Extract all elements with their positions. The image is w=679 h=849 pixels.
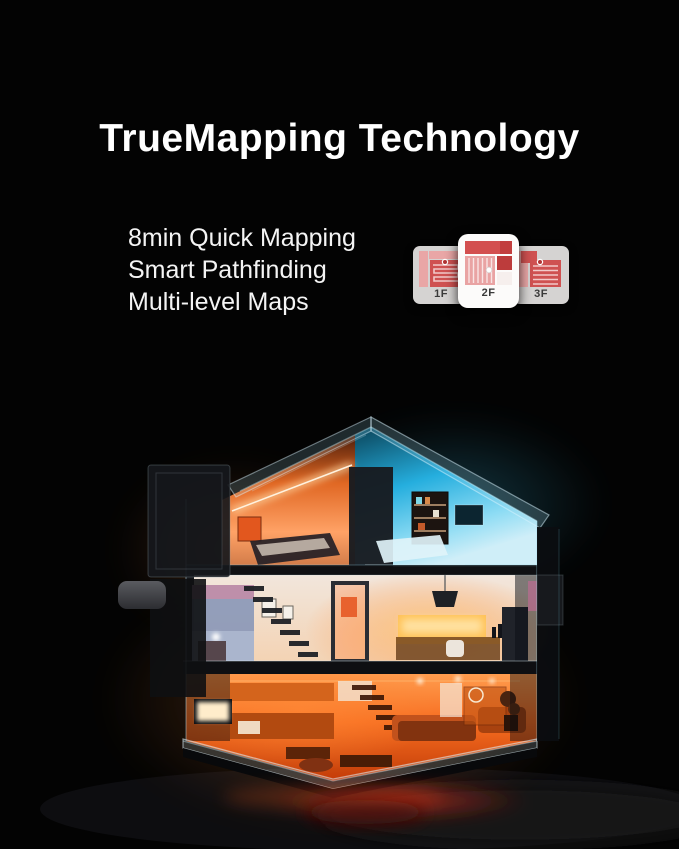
feature-item-smart-pathfinding: Smart Pathfinding — [128, 254, 356, 286]
side-tab — [118, 581, 166, 609]
tv-screen-glow — [197, 702, 229, 721]
chair — [446, 640, 464, 657]
floor-map-icon-2f — [458, 240, 519, 291]
pendant-lamp — [432, 591, 458, 607]
floor-map-icon-3f — [513, 250, 569, 293]
coffee-table — [286, 747, 330, 759]
picture-frame — [283, 606, 293, 619]
floor-card-2f: 2F — [458, 234, 519, 308]
doorway — [333, 583, 367, 661]
coffee-table — [340, 755, 392, 767]
shelving — [464, 687, 506, 725]
ottoman — [299, 758, 333, 772]
house-cutaway-render — [0, 369, 679, 849]
page-title: TrueMapping Technology — [0, 117, 679, 161]
right-glass-panel — [537, 527, 563, 741]
tv-screen — [455, 505, 483, 525]
attic-floor-slab — [186, 565, 537, 575]
floor-map-cards: 1F 2F — [411, 234, 573, 316]
mid-floor-slab — [183, 661, 537, 674]
wall-art-frame — [238, 517, 261, 541]
feature-item-quick-mapping: 8min Quick Mapping — [128, 222, 356, 254]
floor-card-label: 2F — [458, 287, 519, 299]
feature-item-multi-level-maps: Multi-level Maps — [128, 286, 356, 318]
upper-cabinets — [230, 683, 334, 701]
feature-list: 8min Quick Mapping Smart Pathfinding Mul… — [128, 222, 356, 318]
page-root: TrueMapping Technology 8min Quick Mappin… — [0, 0, 679, 849]
floor-card-3f: 3F — [513, 246, 569, 304]
door-art — [341, 597, 357, 617]
floor-card-label: 3F — [513, 288, 569, 300]
